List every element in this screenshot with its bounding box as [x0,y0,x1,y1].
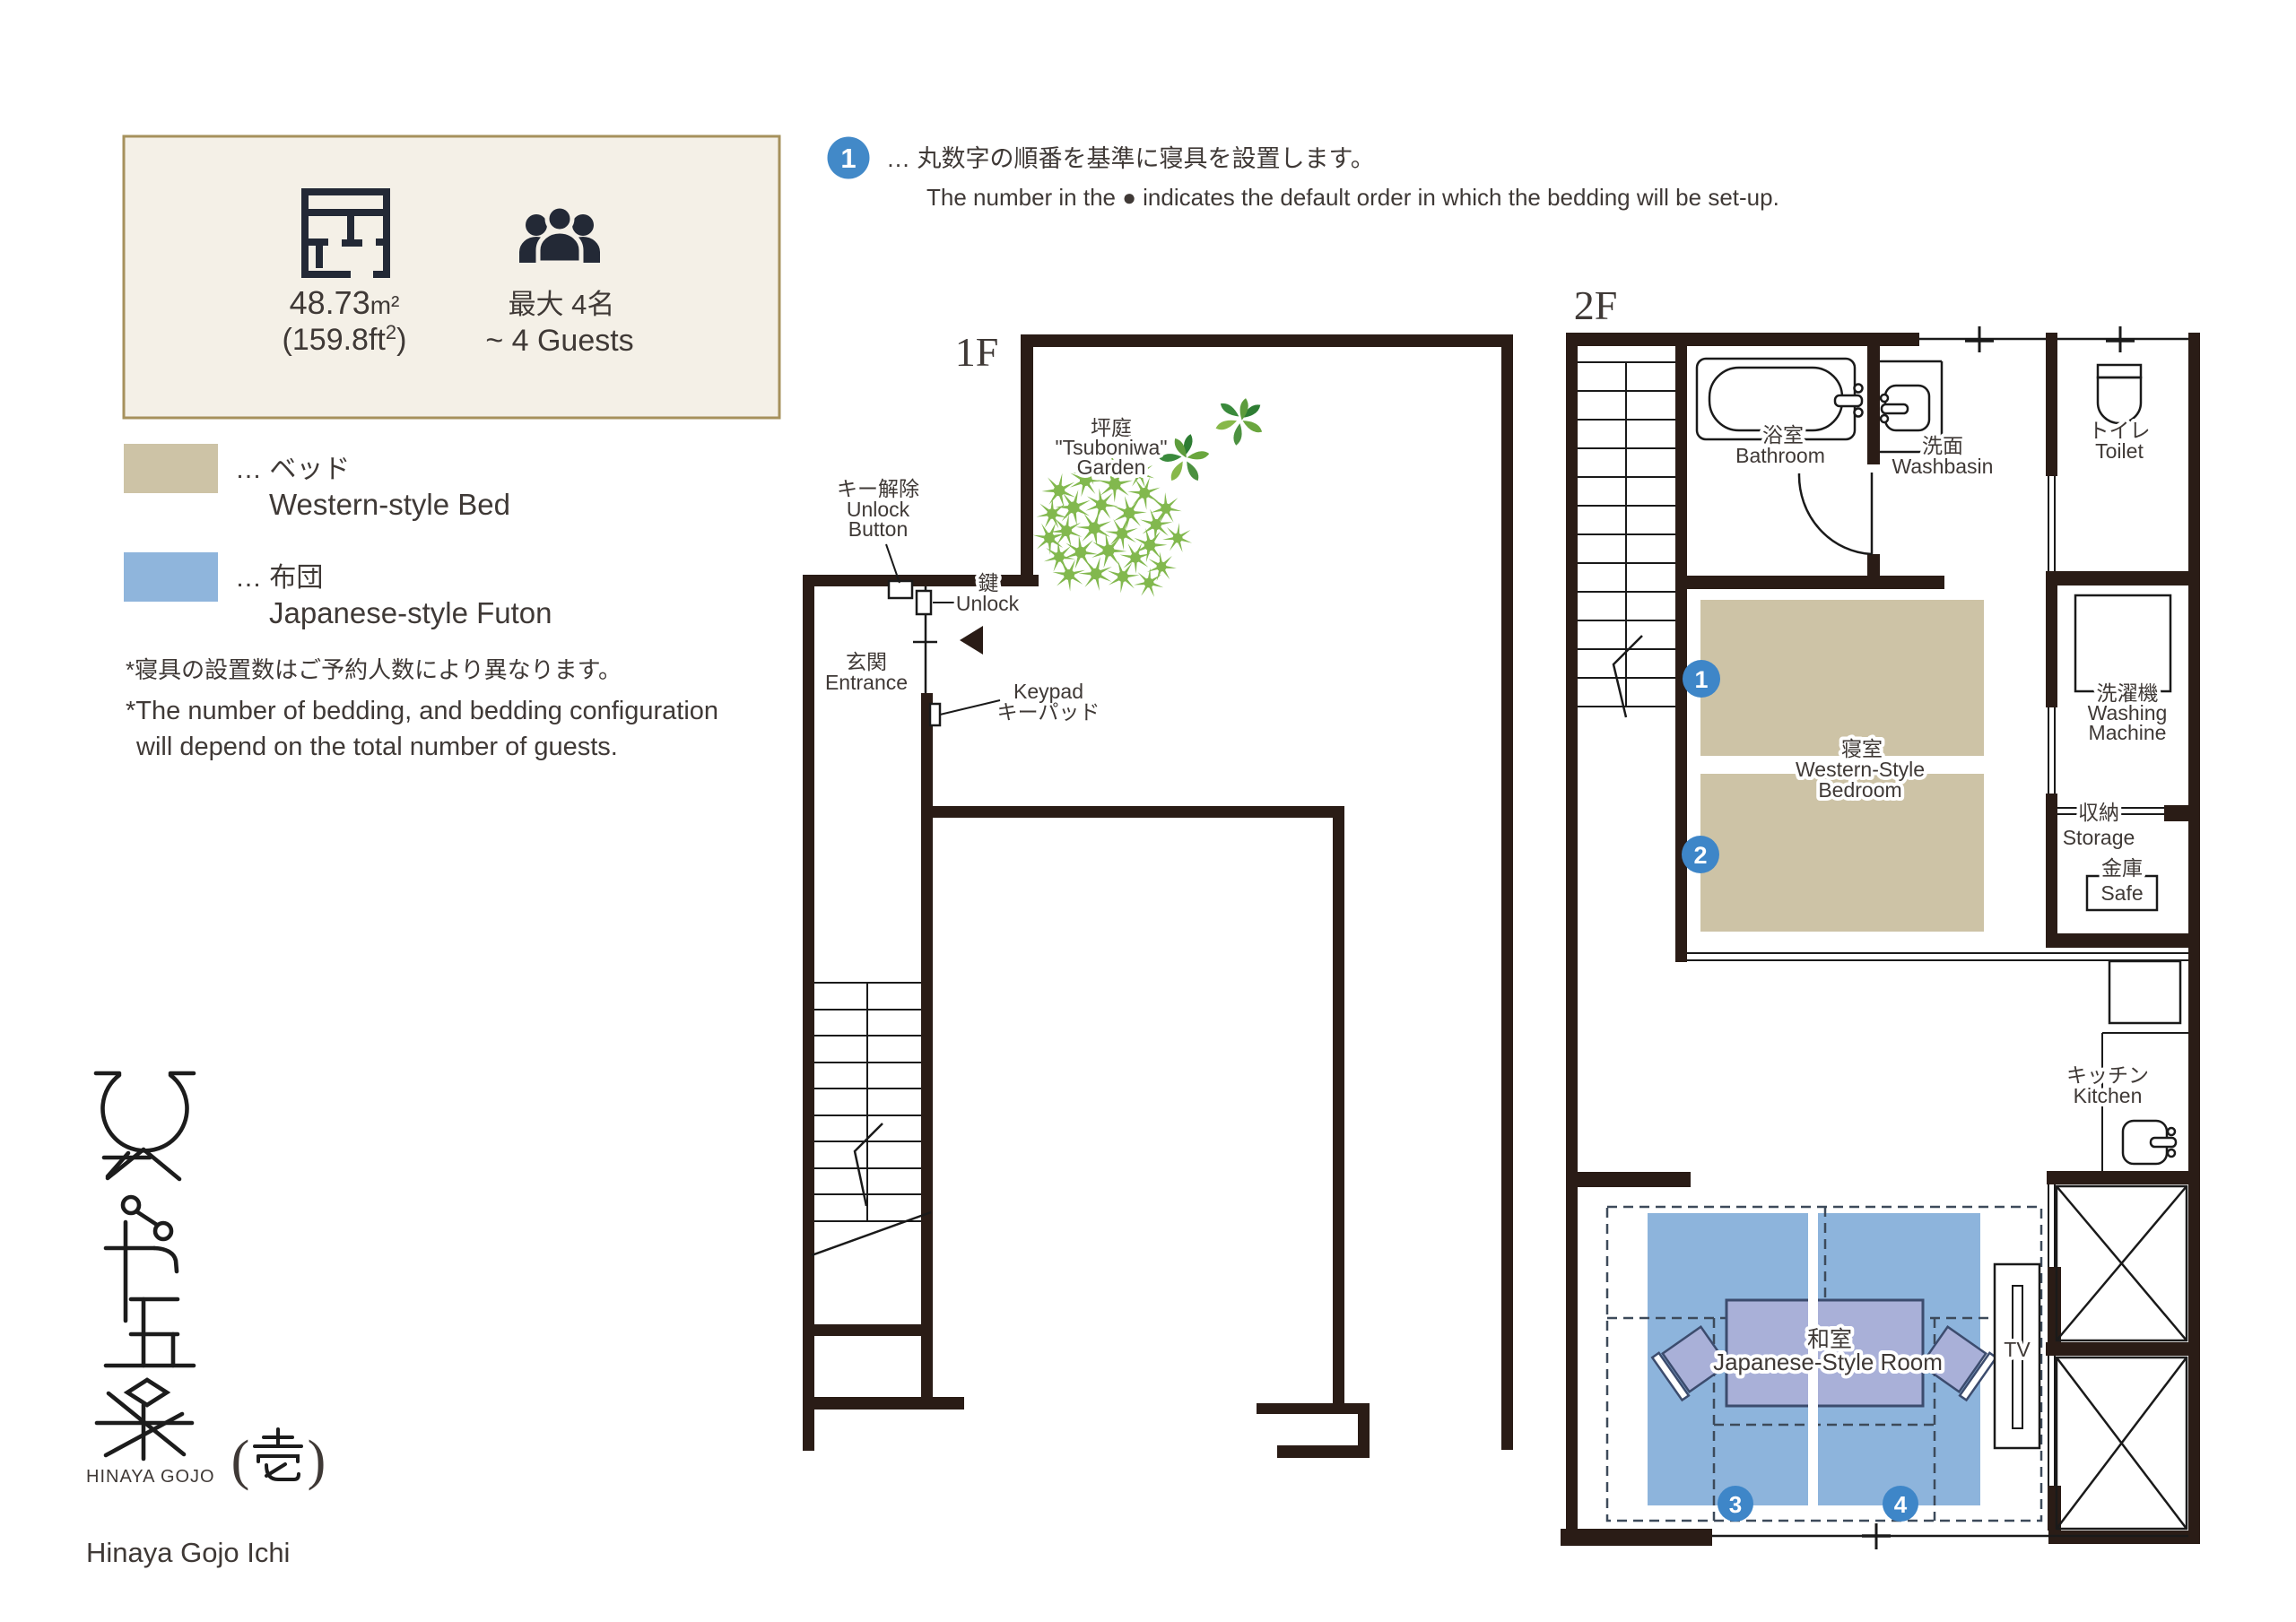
svg-text:… 布団: … 布団 [235,563,323,593]
svg-text:Japanese-Style Room: Japanese-Style Room [1713,1349,1943,1375]
svg-text:Safe: Safe [2100,881,2143,905]
svg-text:(: ( [231,1430,250,1491]
svg-text:Washbasin: Washbasin [1892,455,1994,478]
svg-text:… ベッド: … ベッド [235,455,350,484]
svg-text:will depend on the total numbe: will depend on the total number of guest… [135,733,618,761]
svg-text:3: 3 [1729,1491,1742,1518]
svg-text:収納: 収納 [2078,801,2119,824]
svg-text:Western-style Bed: Western-style Bed [269,488,510,521]
svg-text:金庫: 金庫 [2101,856,2143,880]
svg-text:1: 1 [1694,666,1708,693]
svg-text:Entrance: Entrance [825,671,908,694]
svg-text:Bedroom: Bedroom [1818,778,1901,802]
svg-text:The number in the ● indicates: The number in the ● indicates the defaul… [926,184,1779,211]
svg-text:Hinaya Gojo Ichi: Hinaya Gojo Ichi [86,1537,290,1568]
svg-text:1: 1 [840,143,856,174]
svg-text:1F: 1F [955,329,999,375]
svg-text:Button: Button [848,517,909,541]
svg-text:*寝具の設置数はご予約人数により異なります。: *寝具の設置数はご予約人数により異なります。 [126,656,622,683]
svg-text:Kitchen: Kitchen [2074,1084,2143,1107]
svg-text:Bathroom: Bathroom [1735,444,1825,467]
svg-text:*The number of bedding, and be: *The number of bedding, and bedding conf… [126,697,718,725]
svg-text:… 丸数字の順番を基準に寝具を設置します。: … 丸数字の順番を基準に寝具を設置します。 [886,145,1375,172]
svg-text:Unlock: Unlock [956,592,1020,615]
svg-text:Storage: Storage [2063,826,2135,849]
svg-text:2: 2 [1693,842,1707,869]
svg-text:~ 4 Guests: ~ 4 Guests [485,324,633,358]
svg-text:最大 4名: 最大 4名 [509,289,615,320]
svg-text:Machine: Machine [2089,721,2167,744]
svg-text:TV: TV [2004,1338,2031,1361]
svg-text:Garden: Garden [1077,455,1146,479]
svg-text:4: 4 [1894,1491,1908,1518]
svg-text:Toilet: Toilet [2095,439,2144,463]
svg-text:HINAYA GOJO: HINAYA GOJO [86,1467,215,1487]
svg-text:キーパッド: キーパッド [997,700,1100,724]
svg-text:): ) [308,1430,326,1491]
svg-text:2F: 2F [1574,282,1618,328]
svg-text:Japanese-style Futon: Japanese-style Futon [269,596,552,629]
